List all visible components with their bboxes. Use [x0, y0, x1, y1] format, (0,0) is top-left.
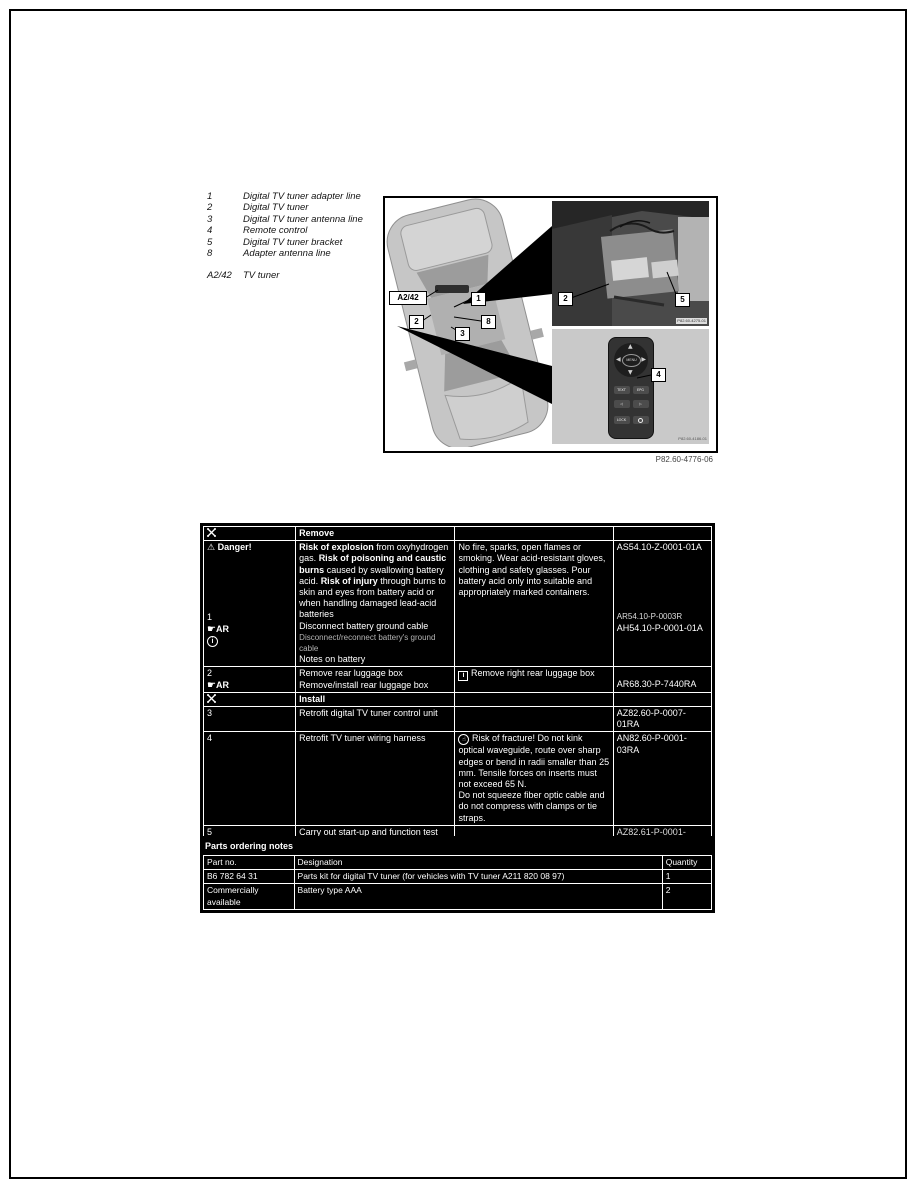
lock-button: LOCK — [614, 416, 630, 424]
designation-value: Parts kit for digital TV tuner (for vehi… — [294, 870, 662, 884]
arrow-up-icon: ▲ — [628, 344, 633, 350]
install-section-header: Install — [296, 692, 455, 706]
sub-document-link: Disconnect/reconnect battery's ground ca… — [299, 632, 451, 654]
legend-label: Digital TV tuner bracket — [243, 237, 342, 248]
parts-row: B6 782 64 31 Parts kit for digital TV tu… — [204, 870, 712, 884]
photo-callout-2: 2 — [558, 292, 573, 306]
legend-item: 3Digital TV tuner antenna line — [207, 214, 402, 225]
legend-item: 4Remote control — [207, 225, 402, 236]
install-header-row: Install — [204, 692, 712, 706]
callout-3: 3 — [455, 327, 470, 341]
part-no-value: Commercially available — [204, 884, 295, 909]
caution-hand-icon: ☝ — [458, 734, 469, 745]
legend-label: Remote control — [243, 225, 307, 236]
legend-module-label: TV tuner — [243, 270, 279, 281]
callout-a2-42: A2/42 — [389, 291, 427, 305]
photo-caption: P82.60-4275-01 — [676, 318, 707, 324]
crossed-tools-icon — [207, 694, 216, 703]
quantity-value: 2 — [662, 884, 711, 909]
remote-control-graphic: ▲ ▼ ◀ ▶ MENU TEXT EPG ◁ ▷ LOCK — [608, 337, 654, 439]
photo-callout-4: 4 — [651, 368, 666, 382]
document-code: AS54.10-Z-0001-01A — [617, 542, 708, 553]
fracture-note: ☝ Risk of fracture! Do not kink optical … — [458, 733, 609, 790]
part-no-value: B6 782 64 31 — [204, 870, 295, 884]
legend-module: A2/42TV tuner — [207, 270, 402, 281]
text-button: TEXT — [614, 386, 630, 394]
step-action: Remove rear luggage box — [299, 668, 451, 679]
pointing-hand-icon: ☛ — [207, 624, 216, 635]
danger-step-cell: ⚠ Danger! 1 ☛AR i — [204, 541, 296, 667]
parts-row: Commercially available Battery type AAA … — [204, 884, 712, 909]
crossed-tools-icon — [207, 528, 216, 537]
legend-item: 2Digital TV tuner — [207, 202, 402, 213]
parts-header-row: Part no. Designation Quantity — [204, 856, 712, 870]
document-codes-cell: AS54.10-Z-0001-01A AR54.10-P-0003R AH54.… — [613, 541, 711, 667]
photo-graphic — [552, 201, 709, 326]
step-number: 2 — [207, 668, 292, 679]
quantity-value: 1 — [662, 870, 711, 884]
warning-triangle-icon: ⚠ — [207, 543, 215, 553]
legend-label: Digital TV tuner adapter line — [243, 191, 361, 202]
epg-button: EPG — [633, 386, 649, 394]
legend-key: 4 — [207, 225, 243, 236]
callout-1: 1 — [471, 292, 486, 306]
step-note-cell: i Remove right rear luggage box — [455, 667, 613, 692]
legend-label: Digital TV tuner antenna line — [243, 214, 363, 225]
step-row-3: 3 Retrofit digital TV tuner control unit… — [204, 707, 712, 732]
arrow-down-icon: ▼ — [628, 370, 633, 376]
installation-figure: P82.60-4275-01 ▲ ▼ ◀ ▶ MENU TEXT EPG ◁ ▷… — [383, 196, 718, 453]
danger-label-line: ⚠ Danger! — [207, 542, 292, 554]
legend-label: Digital TV tuner — [243, 202, 308, 213]
skip-forward-button: ▷ — [633, 400, 649, 408]
legend-key: 3 — [207, 214, 243, 225]
legend-item: 5Digital TV tuner bracket — [207, 237, 402, 248]
step-number: 1 — [207, 612, 292, 623]
legend-module-key: A2/42 — [207, 270, 243, 281]
legend-item: 1Digital TV tuner adapter line — [207, 191, 402, 202]
danger-row: ⚠ Danger! 1 ☛AR i Risk of explosion from… — [204, 541, 712, 667]
step-row-4: 4 Retrofit TV tuner wiring harness ☝ Ris… — [204, 732, 712, 825]
photo-callout-5: 5 — [675, 293, 690, 307]
callout-wedge-bottom — [397, 326, 552, 404]
parts-ordering-table: Parts ordering notes Part no. Designatio… — [200, 836, 715, 913]
pointing-hand-icon: ☛ — [207, 680, 216, 691]
step-action: Remove/install rear luggage box — [299, 680, 451, 691]
column-header-designation: Designation — [294, 856, 662, 870]
document-codes-cell: AR68.30-P-7440RA — [613, 667, 711, 692]
note-link: Notes on battery — [299, 654, 451, 665]
legend-key: 5 — [207, 237, 243, 248]
legend-key: 8 — [207, 248, 243, 259]
step-number: 3 — [204, 707, 296, 732]
arrow-right-icon: ▶ — [641, 357, 646, 363]
column-header-quantity: Quantity — [662, 856, 711, 870]
callout-2: 2 — [409, 315, 424, 329]
step-number: 4 — [204, 732, 296, 825]
section-icon-cell — [204, 692, 296, 706]
step-action-cell: Remove rear luggage box Remove/install r… — [296, 667, 455, 692]
figure-caption: P82.60-4776-06 — [563, 455, 713, 464]
legend: 1Digital TV tuner adapter line 2Digital … — [207, 191, 402, 282]
column-header-part-no: Part no. — [204, 856, 295, 870]
parts-table-title: Parts ordering notes — [203, 839, 712, 855]
step-action: Retrofit TV tuner wiring harness — [296, 732, 455, 825]
fracture-note-2: Do not squeeze fiber optic cable and do … — [458, 790, 609, 824]
remote-nav-pad: ▲ ▼ ◀ ▶ MENU — [614, 343, 648, 377]
antenna-bar-graphic — [435, 285, 469, 293]
designation-value: Battery type AAA — [294, 884, 662, 909]
legend-key: 2 — [207, 202, 243, 213]
document-code: AZ82.60-P-0007-01RA — [613, 707, 711, 732]
document-code: AR68.30-P-7440RA — [617, 679, 708, 690]
danger-description-cell: Risk of explosion from oxyhydrogen gas. … — [296, 541, 455, 667]
section-icon-cell — [204, 527, 296, 541]
step-note-cell: ☝ Risk of fracture! Do not kink optical … — [455, 732, 613, 825]
remove-header-row: Remove — [204, 527, 712, 541]
tv-tuner-box-graphic — [431, 302, 455, 332]
boxed-info-icon: i — [458, 671, 468, 681]
callout-8: 8 — [481, 315, 496, 329]
step-action: Disconnect battery ground cable — [299, 621, 451, 632]
arrow-left-icon: ◀ — [616, 357, 621, 363]
skip-back-button: ◁ — [614, 400, 630, 408]
ar-document-marker: ☛AR — [207, 624, 292, 635]
remote-control-photo: ▲ ▼ ◀ ▶ MENU TEXT EPG ◁ ▷ LOCK P82.60-41… — [552, 329, 709, 444]
menu-button: MENU — [622, 354, 641, 367]
legend-item: 8Adapter antenna line — [207, 248, 402, 259]
step-action: Retrofit digital TV tuner control unit — [296, 707, 455, 732]
document-code: AH54.10-P-0001-01A — [617, 623, 708, 634]
risk-paragraph: Risk of explosion from oxyhydrogen gas. … — [299, 542, 451, 620]
power-icon — [638, 418, 643, 423]
ar-document-marker: ☛AR — [207, 680, 292, 691]
safety-note-cell: No fire, sparks, open flames or smoking.… — [455, 541, 613, 667]
document-code: AN82.60-P-0001-03RA — [613, 732, 711, 825]
legend-label: Adapter antenna line — [243, 248, 331, 259]
power-button — [633, 416, 649, 424]
remove-section-header: Remove — [296, 527, 455, 541]
document-code: AR54.10-P-0003R — [617, 611, 708, 622]
info-circle-icon: i — [207, 636, 218, 647]
step-row-2: 2 ☛AR Remove rear luggage box Remove/ins… — [204, 667, 712, 692]
tuner-installation-photo: P82.60-4275-01 — [552, 201, 709, 326]
procedure-table: Remove ⚠ Danger! 1 ☛AR i Risk of explosi… — [200, 523, 715, 868]
step-number-cell: 2 ☛AR — [204, 667, 296, 692]
legend-key: 1 — [207, 191, 243, 202]
photo-caption: P82.60-4186-01 — [678, 436, 707, 442]
